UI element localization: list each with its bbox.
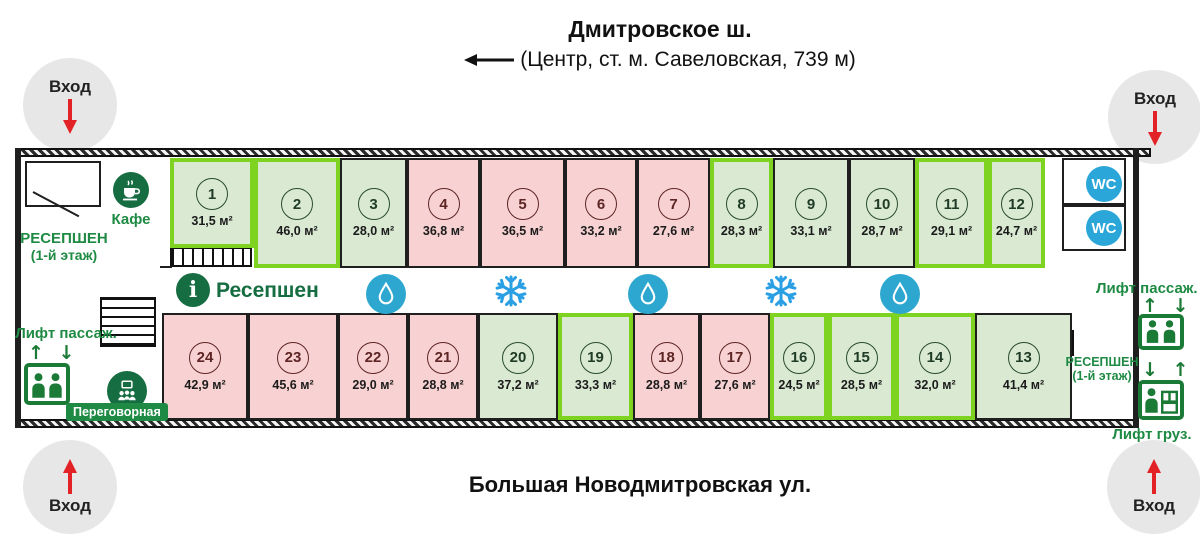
room-number: 19 — [580, 342, 612, 374]
room-18[interactable]: 18 28,8 м² — [633, 313, 700, 420]
room-area: 28,8 м² — [422, 378, 463, 392]
reception-left-line2: (1-й этаж) — [0, 247, 128, 263]
reception-left-line1: РЕСЕПШЕН — [0, 230, 128, 247]
room-number: 2 — [281, 188, 313, 220]
room-number: 9 — [795, 188, 827, 220]
room-area: 24,5 м² — [778, 378, 819, 392]
reception-right-line1: РЕСЕПШЕН — [1062, 355, 1142, 369]
room-11[interactable]: 11 29,1 м² — [915, 158, 988, 268]
room-area: 36,8 м² — [423, 224, 464, 238]
cafe-label: Кафе — [100, 211, 162, 228]
meeting-room-label: Переговорная — [66, 403, 168, 421]
room-23[interactable]: 23 45,6 м² — [248, 313, 338, 420]
room-area: 45,6 м² — [272, 378, 313, 392]
lift-passenger-left-icon — [24, 363, 70, 405]
room-2[interactable]: 2 46,0 м² — [254, 158, 340, 268]
room-number: 22 — [357, 342, 389, 374]
room-area: 41,4 м² — [1003, 378, 1044, 392]
room-number: 18 — [651, 342, 683, 374]
room-area: 24,7 м² — [996, 224, 1037, 238]
room-15[interactable]: 15 28,5 м² — [828, 313, 895, 420]
snowflake-icon — [493, 273, 529, 309]
door-line — [33, 191, 80, 217]
lift-passenger-right-icon — [1138, 314, 1184, 350]
room-22[interactable]: 22 29,0 м² — [338, 313, 408, 420]
room-number: 11 — [936, 188, 968, 220]
room-8[interactable]: 8 28,3 м² — [710, 158, 773, 268]
room-number: 7 — [658, 188, 690, 220]
corridor-reception-label: Ресепшен — [216, 279, 319, 303]
entrance-label: Вход — [1133, 496, 1175, 516]
room-area: 27,6 м² — [714, 378, 755, 392]
wall-north — [15, 148, 1151, 157]
lift-arrows-icon: ↑ ↓ — [28, 344, 78, 363]
water-drop-icon — [880, 274, 920, 314]
lift-arrows-icon: ↓ ↑ — [1142, 361, 1192, 380]
room-area: 32,0 м² — [914, 378, 955, 392]
entrance-top-left: Вход — [23, 58, 117, 152]
room-number: 12 — [1001, 188, 1033, 220]
street-top-subtitle-text: (Центр, ст. м. Савеловская, 739 м) — [520, 48, 856, 72]
room-19[interactable]: 19 33,3 м² — [558, 313, 633, 420]
room-area: 36,5 м² — [502, 224, 543, 238]
room-6[interactable]: 6 33,2 м² — [565, 158, 637, 268]
room-13[interactable]: 13 41,4 м² — [975, 313, 1072, 420]
room-area: 28,7 м² — [861, 224, 902, 238]
reception-left-label: РЕСЕПШЕН (1-й этаж) — [0, 230, 128, 263]
wall-segment — [160, 266, 172, 268]
room-area: 27,6 м² — [653, 224, 694, 238]
room-number: 15 — [846, 342, 878, 374]
room-3[interactable]: 3 28,0 м² — [340, 158, 407, 268]
room-area: 33,1 м² — [790, 224, 831, 238]
room-number: 17 — [719, 342, 751, 374]
reception-right-line2: (1-й этаж) — [1062, 369, 1142, 383]
room-area: 42,9 м² — [184, 378, 225, 392]
water-drop-icon — [628, 274, 668, 314]
room-number: 24 — [189, 342, 221, 374]
room-10[interactable]: 10 28,7 м² — [849, 158, 915, 268]
info-icon: i — [176, 273, 210, 307]
room-number: 20 — [502, 342, 534, 374]
water-drop-icon — [366, 274, 406, 314]
street-bottom-title: Большая Новодмитровская ул. — [300, 472, 980, 498]
room-area: 29,1 м² — [931, 224, 972, 238]
room-24[interactable]: 24 42,9 м² — [162, 313, 248, 420]
wc-icon: WC — [1086, 166, 1122, 202]
room-7[interactable]: 7 27,6 м² — [637, 158, 710, 268]
entrance-label: Вход — [1134, 89, 1176, 109]
room-14[interactable]: 14 32,0 м² — [895, 313, 975, 420]
room-20[interactable]: 20 37,2 м² — [478, 313, 558, 420]
floor-plan-page: { "colors": { "room_green_fill": "#d9e9d… — [0, 0, 1200, 558]
entrance-label: Вход — [49, 496, 91, 516]
room-number: 4 — [428, 188, 460, 220]
room-5[interactable]: 5 36,5 м² — [480, 158, 565, 268]
lift-passenger-left-label: Лифт пассаж. — [2, 325, 130, 342]
entrance-bottom-right: Вход — [1107, 440, 1200, 534]
wall-west — [15, 148, 21, 428]
room-4[interactable]: 4 36,8 м² — [407, 158, 480, 268]
red-arrow-up-icon — [1147, 459, 1161, 494]
room-area: 28,3 м² — [721, 224, 762, 238]
room-area: 29,0 м² — [352, 378, 393, 392]
room-area: 28,8 м² — [646, 378, 687, 392]
entrance-label: Вход — [49, 77, 91, 97]
red-arrow-down-icon — [63, 99, 77, 134]
room-number: 14 — [919, 342, 951, 374]
room-number: 5 — [507, 188, 539, 220]
room-area: 37,2 м² — [497, 378, 538, 392]
room-number: 3 — [358, 188, 390, 220]
room-number: 21 — [427, 342, 459, 374]
room-area: 33,2 м² — [580, 224, 621, 238]
lift-freight-label: Лифт груз. — [1104, 426, 1200, 443]
room-number: 13 — [1008, 342, 1040, 374]
wall-south — [15, 419, 1139, 428]
room-21[interactable]: 21 28,8 м² — [408, 313, 478, 420]
lift-freight-icon — [1138, 380, 1184, 420]
room-area: 28,0 м² — [353, 224, 394, 238]
entrance-bottom-left: Вход — [23, 440, 117, 534]
room-9[interactable]: 9 33,1 м² — [773, 158, 849, 268]
room-number: 23 — [277, 342, 309, 374]
room-area: 28,5 м² — [841, 378, 882, 392]
snowflake-icon — [763, 273, 799, 309]
room-1[interactable]: 1 31,5 м² — [170, 158, 254, 248]
room-number: 1 — [196, 178, 228, 210]
room-16[interactable]: 16 24,5 м² — [770, 313, 828, 420]
room-12[interactable]: 12 24,7 м² — [988, 158, 1045, 268]
room-number: 6 — [585, 188, 617, 220]
street-top-title: Дмитровское ш. — [340, 16, 980, 43]
room-area: 33,3 м² — [575, 378, 616, 392]
room-area: 46,0 м² — [276, 224, 317, 238]
room-number: 10 — [866, 188, 898, 220]
room-number: 8 — [726, 188, 758, 220]
red-arrow-up-icon — [63, 459, 77, 494]
vestibule-top-left — [25, 161, 101, 207]
reception-right-label: РЕСЕПШЕН (1-й этаж) — [1062, 355, 1142, 384]
wc-icon: WC — [1086, 210, 1122, 246]
stairs-below-room-1 — [170, 247, 252, 267]
red-arrow-down-icon — [1148, 111, 1162, 146]
street-top-subtitle: (Центр, ст. м. Савеловская, 739 м) — [300, 48, 1020, 72]
room-area: 31,5 м² — [191, 214, 232, 228]
left-arrow-icon — [464, 53, 514, 67]
cafe-icon — [113, 172, 149, 208]
room-number: 16 — [783, 342, 815, 374]
room-17[interactable]: 17 27,6 м² — [700, 313, 770, 420]
